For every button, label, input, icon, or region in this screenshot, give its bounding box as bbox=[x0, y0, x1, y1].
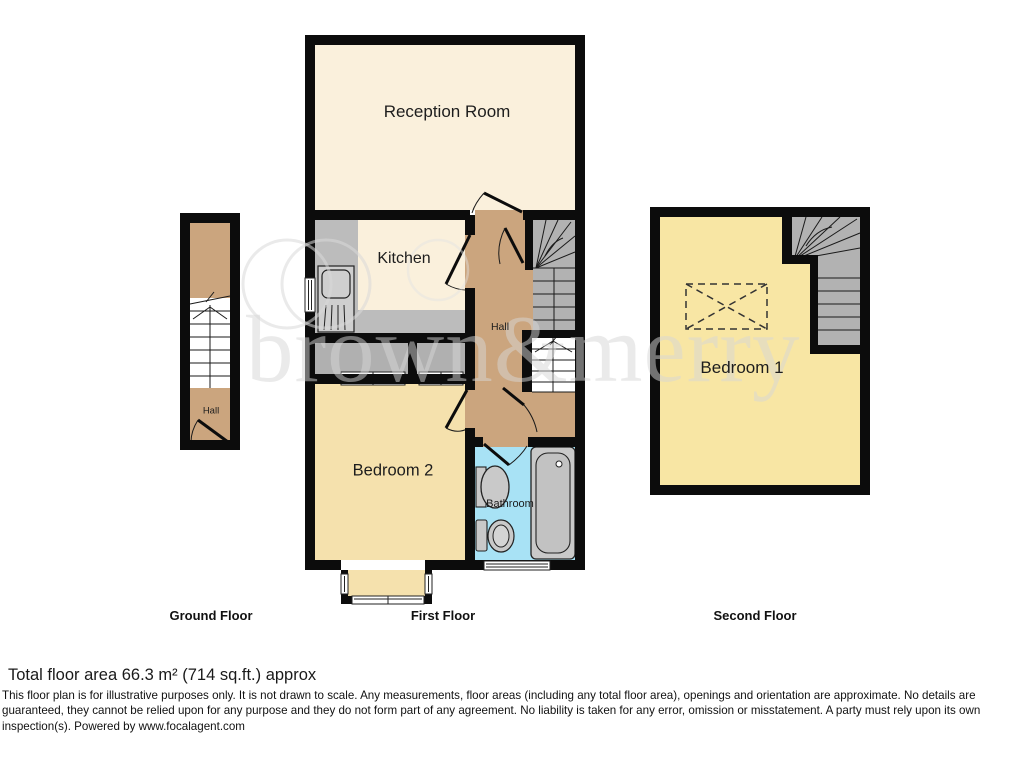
hall-extension-area bbox=[525, 392, 575, 437]
ground-floor-plan bbox=[180, 213, 240, 450]
second-floor-plan bbox=[650, 207, 870, 495]
closet-2 bbox=[417, 343, 465, 374]
ground-hall-lower bbox=[190, 388, 230, 440]
reception-room-area bbox=[315, 45, 575, 210]
closet-1 bbox=[315, 343, 408, 374]
bathtub-icon bbox=[531, 447, 575, 559]
toilet-icon bbox=[476, 520, 514, 552]
bedroom2-bay-area bbox=[348, 570, 425, 596]
kitchen-window bbox=[305, 278, 315, 312]
kitchen-sink-icon bbox=[318, 266, 354, 332]
bedroom2-area bbox=[315, 384, 465, 560]
ground-hall-upper bbox=[190, 223, 230, 298]
basin-icon bbox=[476, 466, 509, 508]
first-floor-plan bbox=[305, 35, 585, 604]
bathroom-window bbox=[484, 561, 550, 570]
floor-plan-canvas bbox=[0, 0, 1024, 768]
